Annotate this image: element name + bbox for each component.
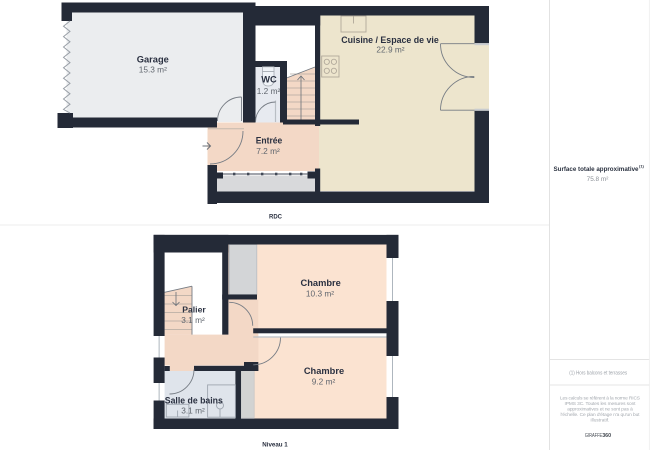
svg-text:RDC: RDC: [269, 214, 283, 220]
svg-text:Entrée: Entrée: [256, 135, 283, 145]
svg-text:15.3 m²: 15.3 m²: [139, 64, 167, 74]
svg-text:Niveau 1: Niveau 1: [262, 442, 288, 449]
svg-text:1.2 m²: 1.2 m²: [257, 86, 281, 96]
svg-text:(1) Hors balcons et terrasses: (1) Hors balcons et terrasses: [569, 370, 627, 376]
svg-text:Salle de bains: Salle de bains: [165, 396, 223, 406]
svg-text:Chambre: Chambre: [304, 366, 344, 376]
svg-text:Garage: Garage: [137, 54, 169, 64]
svg-text:GIRAFFE: GIRAFFE: [585, 433, 603, 439]
svg-text:l'échelle. Ce plan d'étage n'a: l'échelle. Ce plan d'étage n'a qu'un but: [561, 412, 641, 418]
svg-text:Surface totale approximative: Surface totale approximative: [554, 166, 639, 173]
svg-text:22.9 m²: 22.9 m²: [376, 44, 404, 54]
svg-text:Les calculs se réfèrent à la n: Les calculs se réfèrent à la norme RICS: [560, 395, 640, 401]
svg-text:360: 360: [602, 433, 611, 439]
svg-text:IPMS 3C. Toutes les mesures so: IPMS 3C. Toutes les mesures sont: [565, 401, 637, 407]
svg-text:3.1 m²: 3.1 m²: [181, 405, 205, 415]
svg-text:illustratif.: illustratif.: [591, 417, 610, 423]
svg-text:75.8 m²: 75.8 m²: [587, 176, 609, 183]
svg-text:approximatives et ne sont pas: approximatives et ne sont pas à: [567, 406, 633, 412]
svg-text:7.2 m²: 7.2 m²: [256, 146, 280, 156]
svg-text:(1): (1): [639, 164, 645, 169]
svg-text:Chambre: Chambre: [301, 278, 341, 288]
svg-text:Palier: Palier: [182, 304, 206, 314]
svg-text:9.2 m²: 9.2 m²: [312, 377, 336, 387]
svg-text:10.3 m²: 10.3 m²: [306, 289, 334, 299]
svg-text:3.1 m²: 3.1 m²: [181, 315, 205, 325]
svg-text:WC: WC: [261, 75, 277, 85]
